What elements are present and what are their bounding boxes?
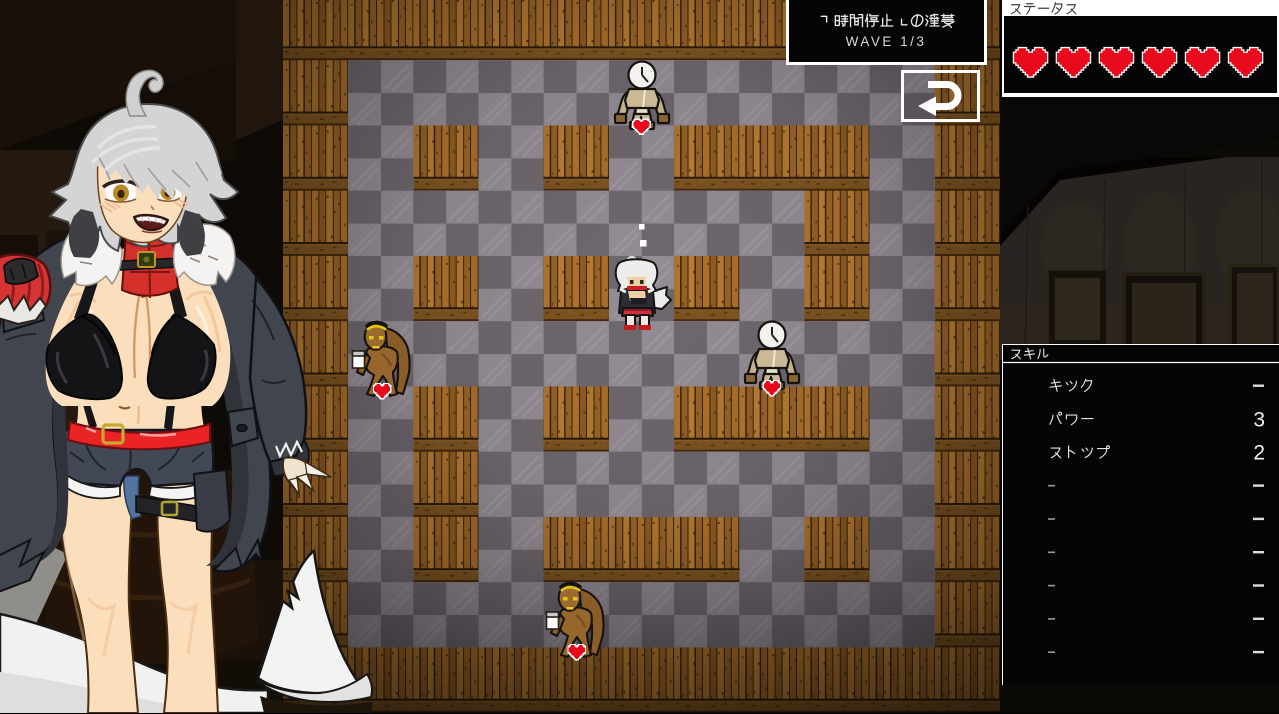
svg-text:3: 3	[1253, 408, 1265, 431]
svg-text:WAVE 1/3: WAVE 1/3	[846, 34, 927, 49]
svg-text:2: 2	[1253, 442, 1265, 465]
